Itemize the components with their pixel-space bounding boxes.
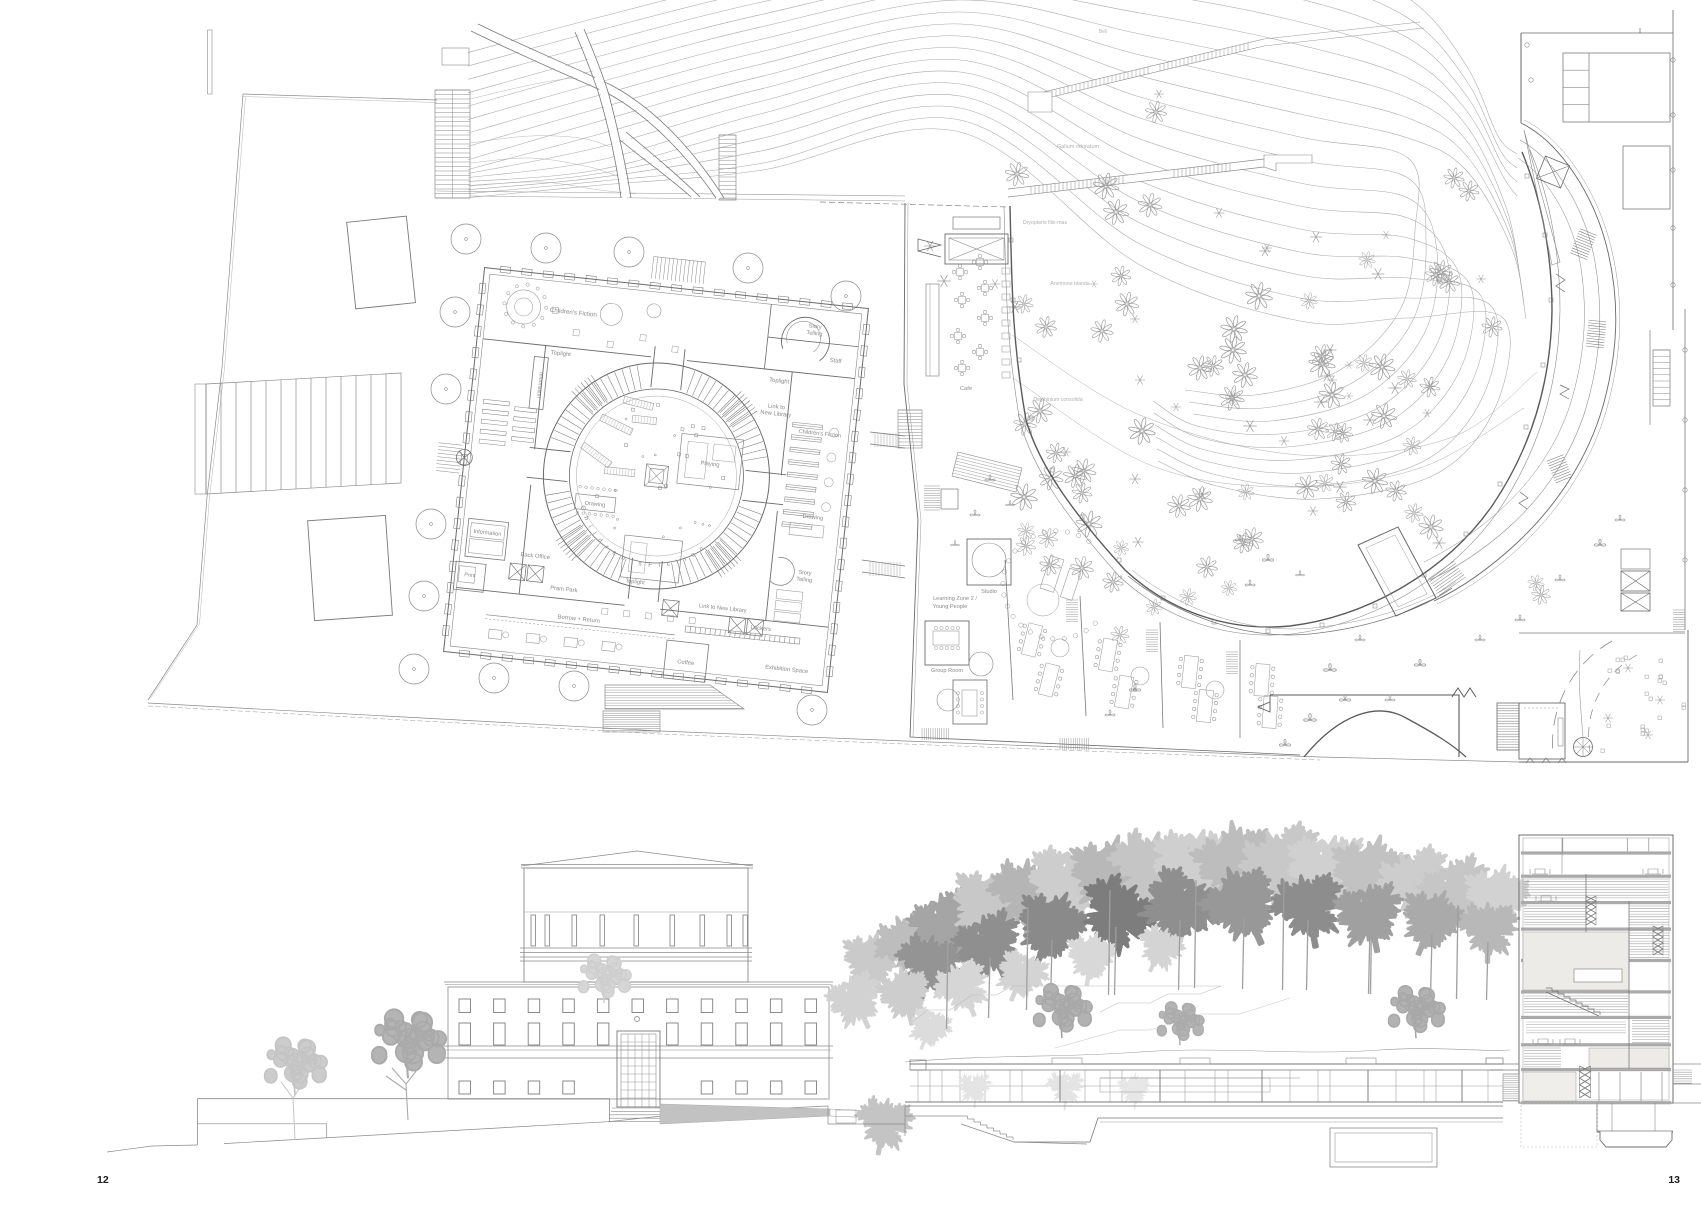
svg-text:Dryopteris filix-mas: Dryopteris filix-mas xyxy=(1023,220,1068,226)
svg-text:Studio: Studio xyxy=(981,589,997,595)
svg-text:Learning Zone 2 /: Learning Zone 2 / xyxy=(933,596,977,602)
svg-text:Galium odoratum: Galium odoratum xyxy=(1057,144,1100,150)
svg-text:Bell: Bell xyxy=(1099,29,1107,35)
svg-text:Cafe: Cafe xyxy=(960,386,972,392)
svg-text:Group Room: Group Room xyxy=(931,668,963,674)
svg-text:Anemone blanda: Anemone blanda xyxy=(1050,281,1089,287)
svg-text:Print: Print xyxy=(464,572,476,579)
svg-text:13: 13 xyxy=(1668,1174,1680,1186)
svg-text:12: 12 xyxy=(97,1174,109,1186)
svg-text:Young People: Young People xyxy=(933,604,968,610)
